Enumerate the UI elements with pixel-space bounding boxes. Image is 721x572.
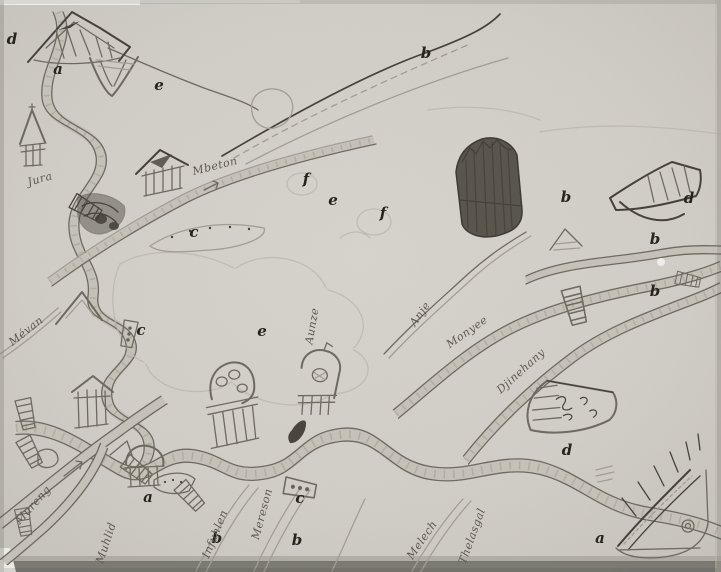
map-stage: Halftone reproduction of a child's penci…: [0, 0, 721, 572]
dark-spire-icon: [456, 138, 522, 237]
map-drawing: Halftone reproduction of a child's penci…: [0, 0, 721, 572]
paper-background: [0, 0, 721, 572]
white-speck: [657, 258, 665, 266]
